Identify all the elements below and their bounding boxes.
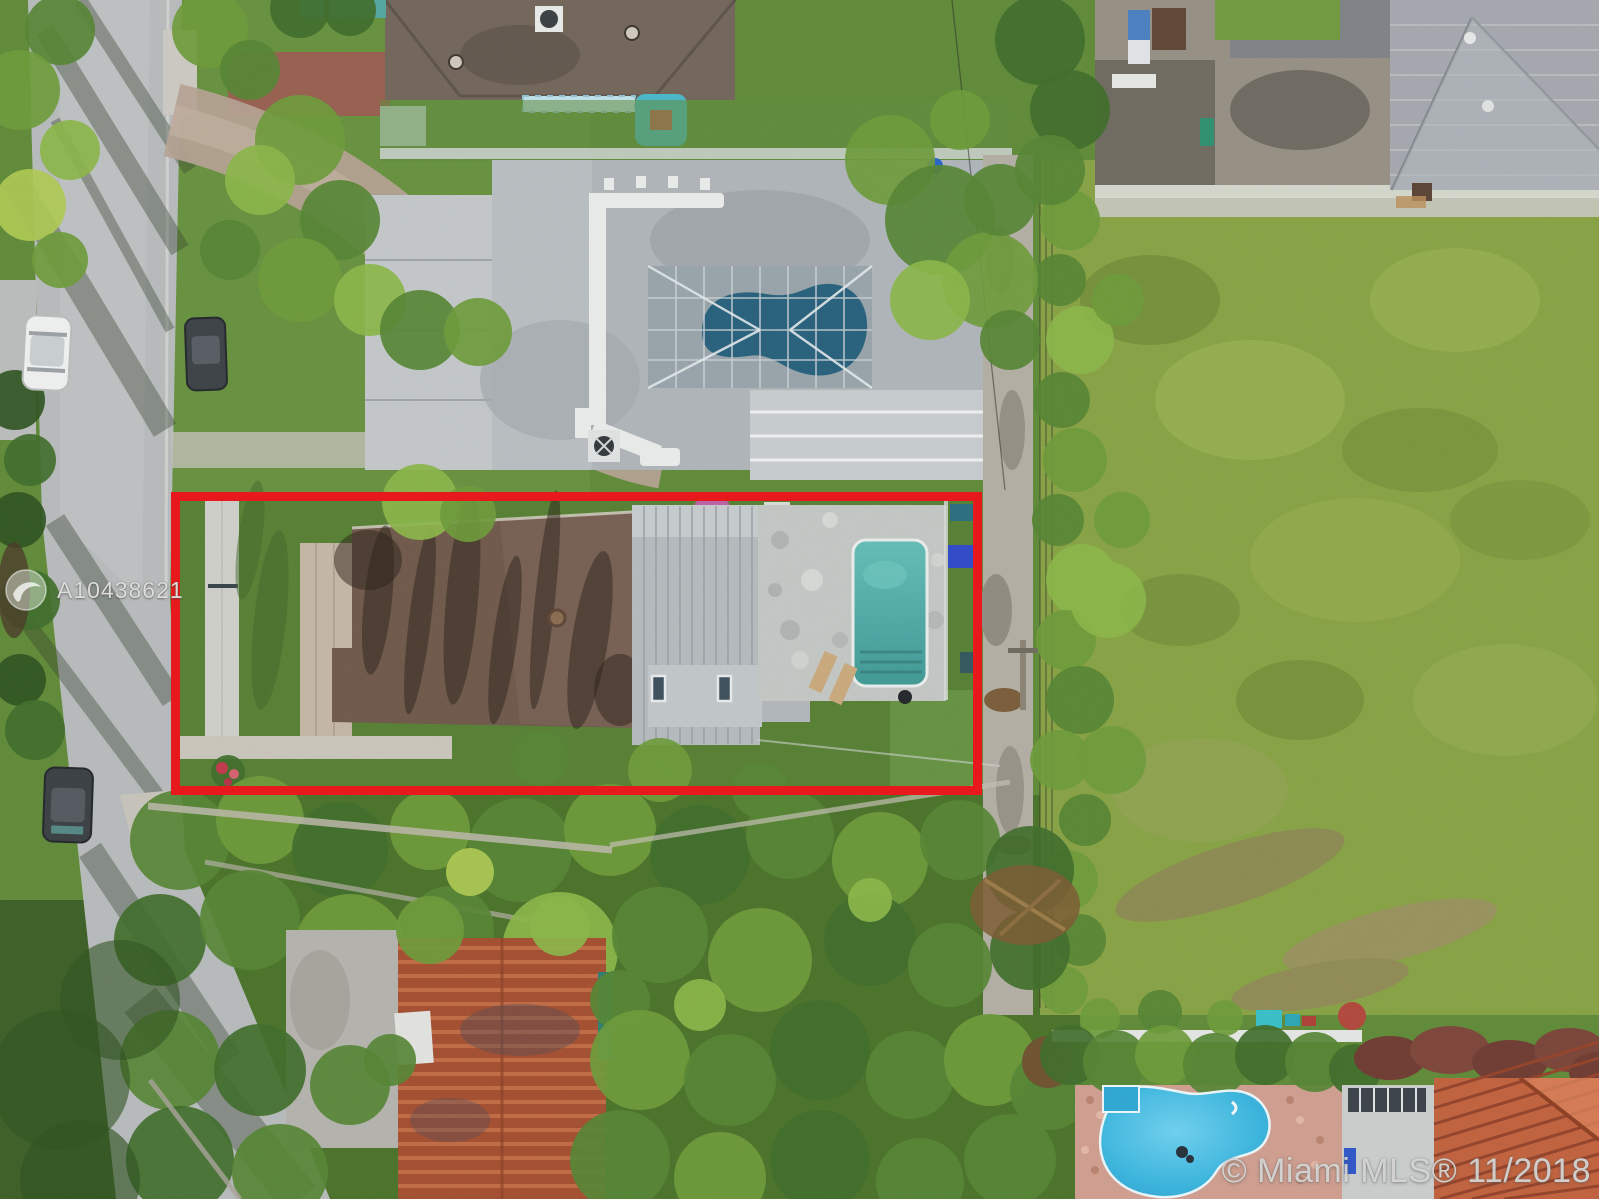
mls-number-text: A10438621 [57,577,184,604]
property-highlight-box [171,492,982,795]
mls-watermark: A10438621 [4,568,184,612]
mls-logo-icon [4,568,48,612]
copyright-watermark: © Miami MLS® 11/2018 [1222,1152,1591,1191]
aerial-photo: A10438621 © Miami MLS® 11/2018 [0,0,1599,1199]
